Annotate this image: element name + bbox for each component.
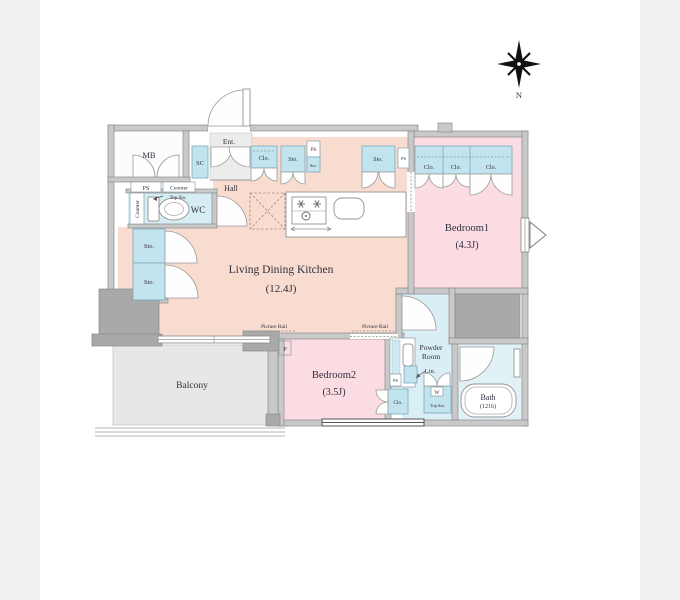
storage-label: Sto. (373, 157, 383, 163)
counter-label: Counter (170, 186, 188, 192)
structural-pillar (92, 334, 162, 346)
linen-cabinet (404, 366, 417, 383)
bedroom1-label: Bedroom1 (445, 223, 489, 234)
ldk-label: Living Dining Kitchen (229, 264, 334, 276)
wall-segment (438, 123, 452, 132)
closet-label: Clo. (424, 165, 435, 171)
floor-plan: Living Dining Kitchen (12.4J) Bedroom1 (… (92, 89, 546, 436)
wall-segment (449, 338, 528, 344)
closet-label: Clo. (451, 165, 462, 171)
bedroom2-window (322, 419, 424, 426)
bedroom1-size-label: (4.3J) (455, 240, 478, 251)
washer-label: W (434, 390, 440, 396)
closet-label: Clo. (393, 400, 403, 406)
top-storage-label: Top Sto. (430, 403, 445, 408)
linen-label: Lin. (425, 368, 436, 375)
wall-segment (183, 131, 189, 177)
storage-label: Sto. (288, 157, 298, 163)
bath-size-label: (1216) (480, 403, 496, 410)
counter-vertical-label: Counter (135, 200, 141, 218)
wall-segment (212, 193, 217, 226)
wall-segment (108, 177, 190, 182)
ps-label: PS (393, 378, 399, 383)
compass-north-label: N (516, 90, 522, 100)
wall-segment (268, 345, 278, 425)
bedroom2-size-label: (3.5J) (322, 387, 345, 398)
wall-segment (396, 288, 528, 294)
wall-segment (449, 288, 455, 344)
wall-segment (250, 125, 418, 131)
storage-label: Sto. (144, 279, 155, 286)
wall-segment (108, 125, 208, 131)
entrance-label: Ent. (223, 137, 235, 146)
picture-rail-label: Picture Rail (261, 324, 288, 330)
closet-label: Clo. (486, 165, 497, 171)
wall-segment (396, 294, 402, 339)
storage-label: Sto. (310, 163, 317, 168)
bath-label: Bath (480, 393, 495, 402)
storage-label: Sto. (144, 243, 155, 250)
ps-label: PS (143, 186, 150, 192)
powder-room-label-1: Powder (420, 343, 443, 352)
wall-segment (522, 131, 528, 218)
top-storage-label: Top Sto. (170, 196, 187, 201)
hall-label: Hall (224, 184, 239, 193)
wc-label: WC (191, 205, 206, 215)
bath-niche (514, 349, 520, 377)
sliding-door-bedroom1 (407, 172, 415, 212)
closet-label: Clo. (259, 156, 270, 162)
powder-room-label-2: Room (422, 352, 441, 361)
shoe-closet-label: SC (196, 160, 204, 167)
balcony-label: Balcony (176, 381, 208, 391)
picture-rail-label: Picture Rail (362, 324, 389, 330)
wall-segment (108, 125, 114, 291)
sink-icon (334, 198, 364, 219)
wall-segment (414, 131, 528, 137)
ps-label: PS (311, 148, 317, 153)
ldk-size-label: (12.4J) (266, 283, 297, 295)
ldk-balcony-window (158, 336, 270, 343)
bedroom2-label: Bedroom2 (312, 370, 356, 381)
structural-pillar (266, 414, 280, 426)
pole-box (279, 341, 291, 355)
wall-segment (128, 224, 217, 228)
wall-segment (452, 344, 458, 420)
ps-label: PS (401, 156, 407, 161)
stove-icon (292, 197, 326, 224)
meter-box-label: MB (142, 150, 156, 160)
structural-void (455, 294, 520, 338)
